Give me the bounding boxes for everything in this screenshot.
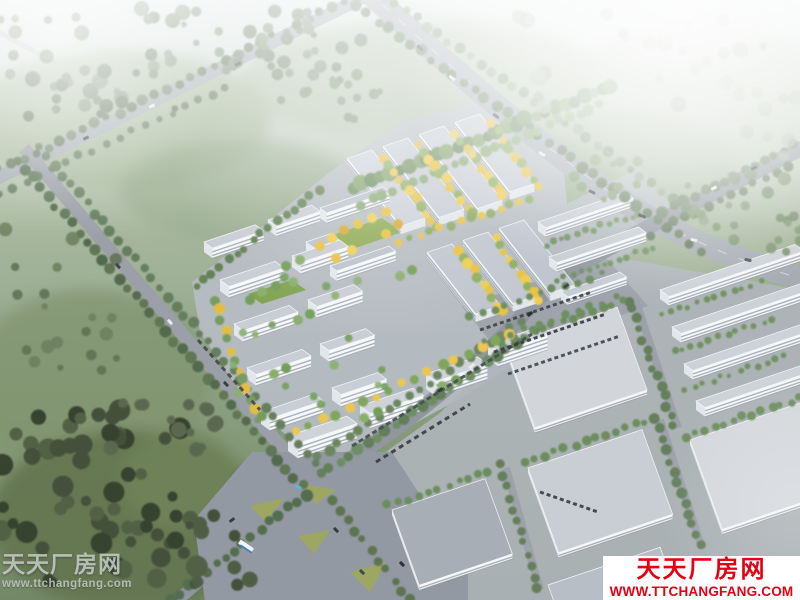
aerial-render-photo: 天天厂房网 www.ttchangfang.com 天天厂房网 WWW.TTCH… (0, 0, 800, 600)
watermark-right-site-url: WWW.TTCHANGFANG.COM (610, 584, 794, 599)
industrial-park-aerial-scene (0, 0, 800, 600)
color-veil (0, 0, 800, 600)
watermark-right-site-name: 天天厂房网 (637, 558, 767, 582)
watermark-right-box: 天天厂房网 WWW.TTCHANGFANG.COM (603, 556, 800, 600)
